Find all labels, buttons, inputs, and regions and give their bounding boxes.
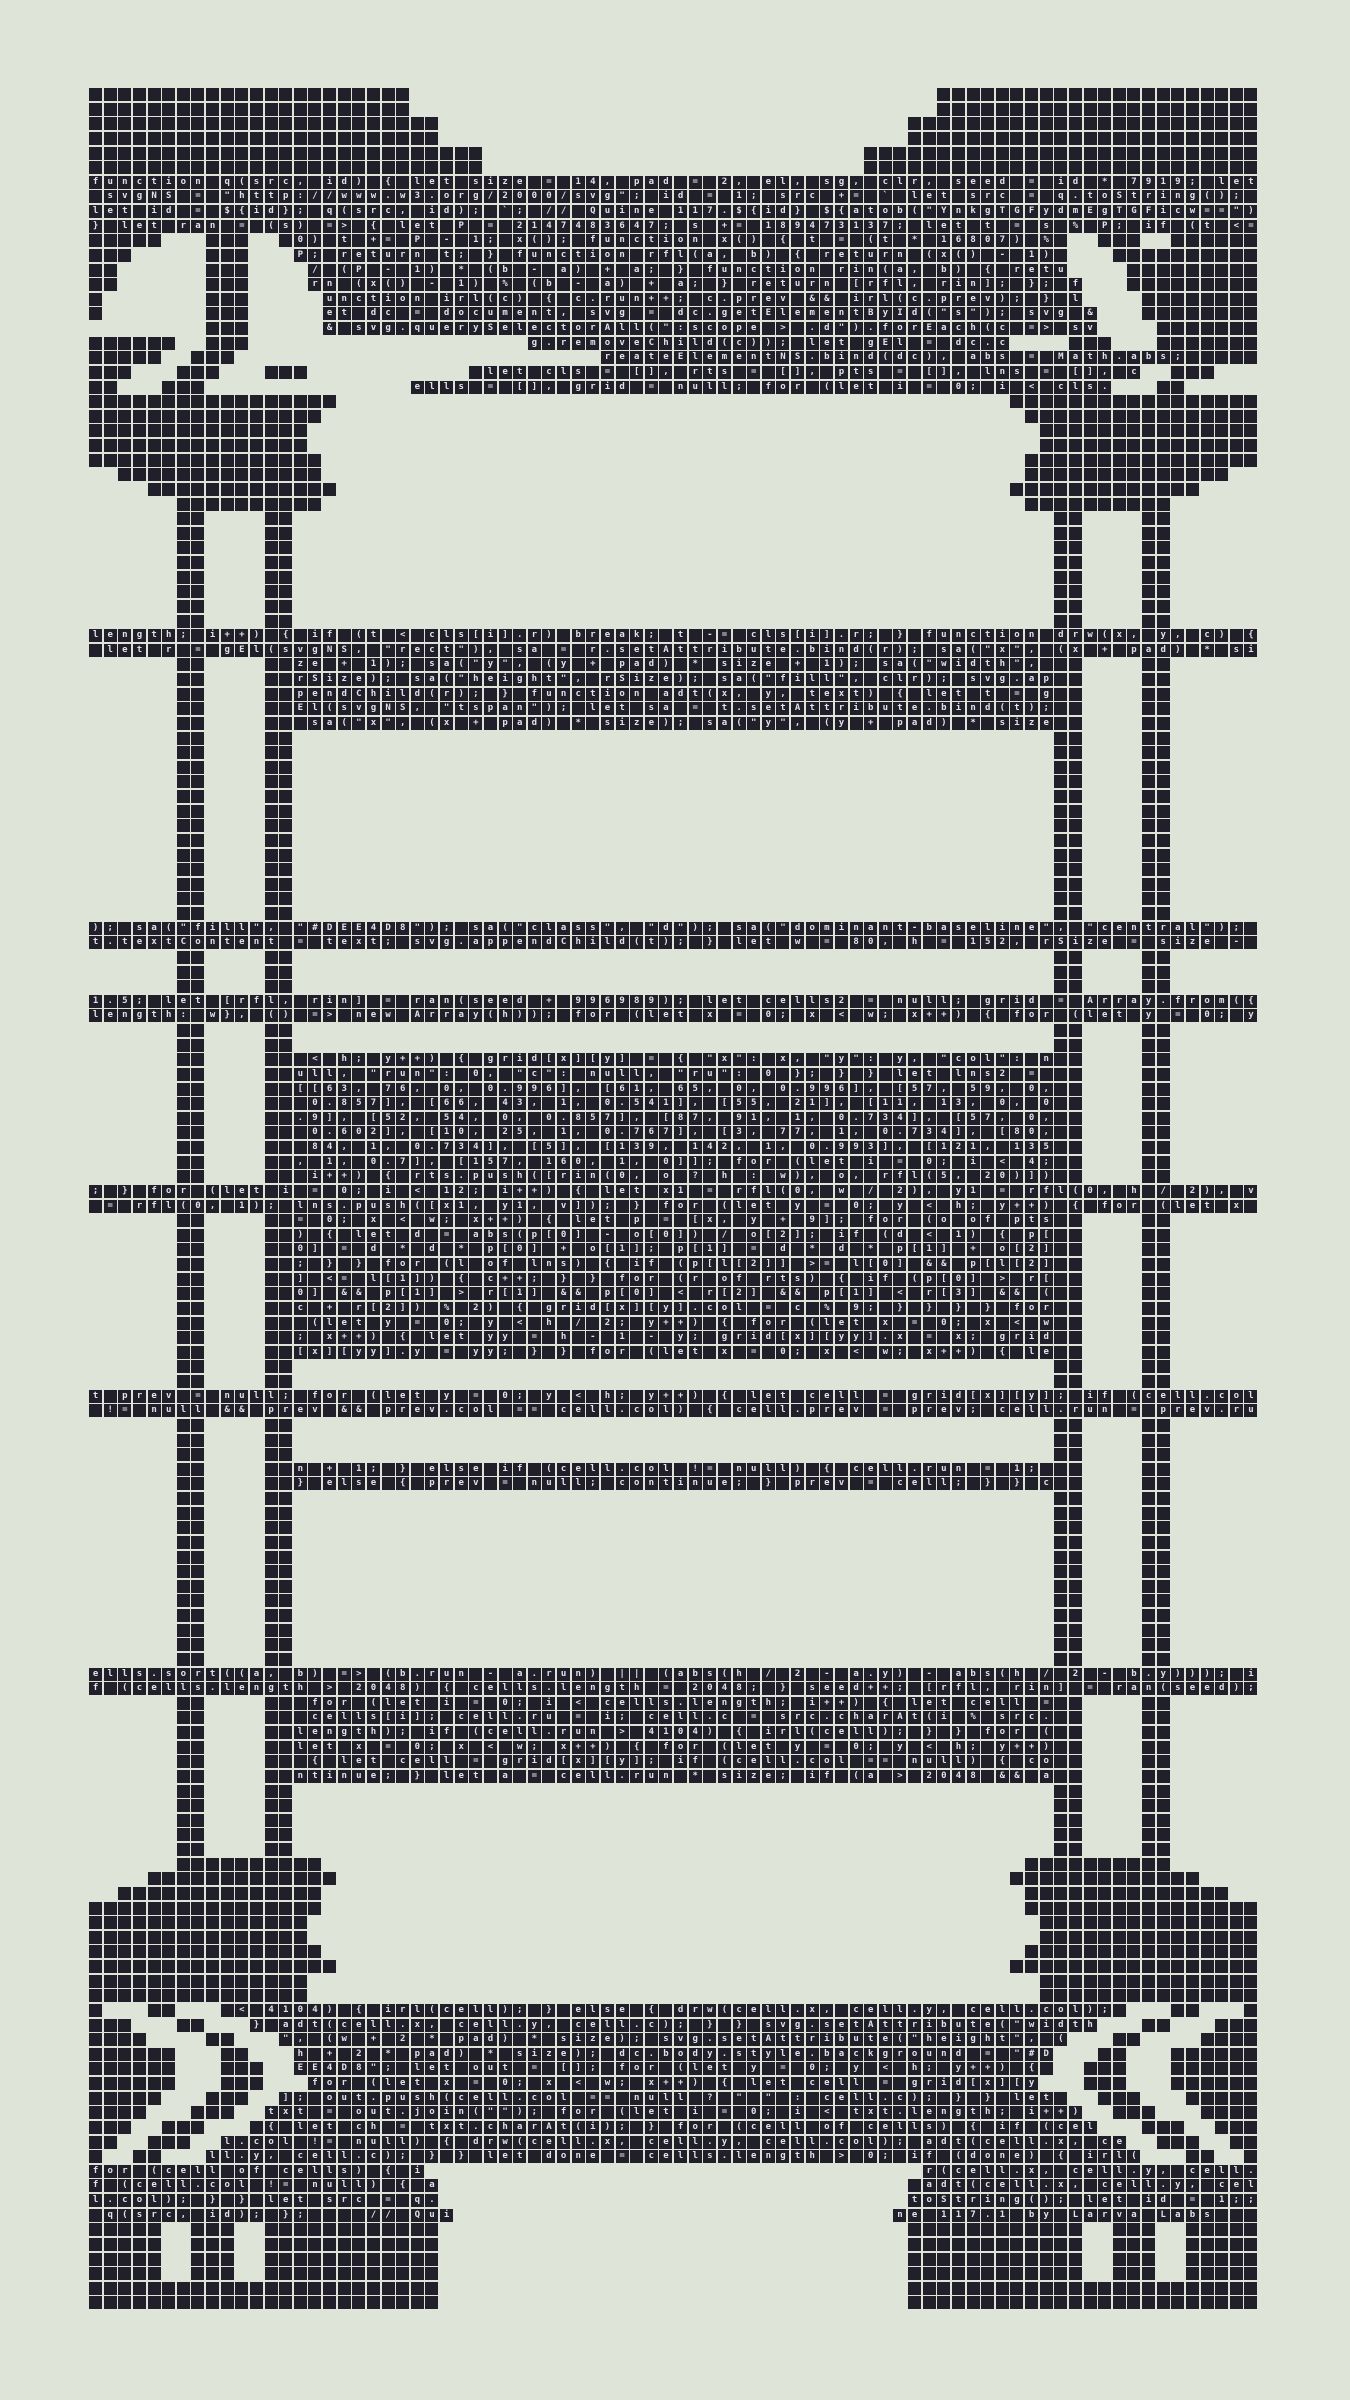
pattern-tile [411,132,424,145]
pattern-tile [265,1243,278,1256]
pattern-tile [703,220,716,233]
code-glyph-tile: f [528,688,541,701]
code-glyph-tile: . [908,1463,921,1476]
pattern-tile [1142,1799,1155,1812]
code-glyph-tile: o [791,264,804,277]
pattern-tile [1069,439,1082,452]
pattern-tile [118,1945,131,1958]
pattern-tile [791,293,804,306]
pattern-tile [572,307,585,320]
code-glyph-tile: ] [572,1229,585,1242]
pattern-tile [1054,1638,1067,1651]
code-glyph-tile: d [923,717,936,730]
code-glyph-tile: a [850,1668,863,1681]
pattern-tile [1142,483,1155,496]
code-glyph-tile: ] [411,1273,424,1286]
pattern-tile [133,1916,146,1929]
pattern-tile [1142,629,1155,642]
pattern-tile [104,1960,117,1973]
pattern-tile [1157,1097,1170,1110]
code-glyph-tile: ; [776,1770,789,1783]
code-glyph-tile: , [718,1214,731,1227]
code-glyph-tile: > [996,1273,1009,1286]
pattern-tile [630,1711,643,1724]
code-glyph-tile: z [338,673,351,686]
pattern-tile [923,161,936,174]
code-glyph-tile: e [148,1682,161,1695]
code-glyph-tile: ; [352,1053,365,1066]
code-glyph-tile: d [440,307,453,320]
pattern-tile [776,1477,789,1490]
code-glyph-tile: e [923,1697,936,1710]
code-glyph-tile: e [762,1390,775,1403]
pattern-tile [1069,849,1082,862]
code-glyph-tile: { [308,1755,321,1768]
pattern-tile [279,1039,292,1052]
pattern-tile [791,322,804,335]
pattern-tile [1201,439,1214,452]
pattern-tile [191,878,204,891]
code-glyph-tile: p [1025,1229,1038,1242]
code-glyph-tile: " [1201,922,1214,935]
pattern-tile [1054,1317,1067,1330]
pattern-tile [659,1053,672,1066]
code-glyph-tile: g [996,1331,1009,1344]
code-glyph-tile: ) [996,293,1009,306]
pattern-tile [1230,88,1243,101]
code-glyph-tile: , [733,176,746,189]
pattern-tile [981,161,994,174]
pattern-tile [1054,1945,1067,1958]
code-glyph-tile: } [1025,278,1038,291]
pattern-tile [1142,1872,1155,1885]
pattern-tile [1113,395,1126,408]
code-glyph-tile: 5 [689,1083,702,1096]
pattern-tile [864,1697,877,1710]
code-glyph-tile: l [352,1711,365,1724]
code-glyph-tile: ) [542,717,555,730]
code-glyph-tile: ] [674,1302,687,1315]
pattern-tile [265,527,278,540]
pattern-tile [1025,1770,1038,1783]
pattern-tile [528,1302,541,1315]
pattern-tile [601,1668,614,1681]
code-glyph-tile: " [850,1053,863,1066]
pattern-tile [265,1331,278,1344]
code-glyph-tile: S [484,322,497,335]
code-glyph-tile: 1 [440,1126,453,1139]
pattern-tile [908,117,921,130]
code-glyph-tile: x [616,1302,629,1315]
pattern-tile [850,1755,863,1768]
code-glyph-tile: 0 [572,1156,585,1169]
pattern-tile [177,1434,190,1447]
code-glyph-tile: ; [967,381,980,394]
pattern-tile [528,1317,541,1330]
pattern-tile [191,1331,204,1344]
pattern-tile [323,1872,336,1885]
code-glyph-tile: t [616,702,629,715]
code-glyph-tile: d [586,1302,599,1315]
pattern-tile [1025,220,1038,233]
code-glyph-tile: S [308,673,321,686]
pattern-tile [572,1346,585,1359]
pattern-tile [235,1872,248,1885]
code-glyph-tile: d [528,1053,541,1066]
code-glyph-tile: l [762,1404,775,1417]
code-glyph-tile: e [308,1741,321,1754]
code-glyph-tile: " [923,205,936,218]
code-glyph-tile: l [762,1185,775,1198]
code-glyph-tile: y [499,1200,512,1213]
pattern-tile [265,498,278,511]
code-glyph-tile: r [864,278,877,291]
pattern-tile [191,1799,204,1812]
code-glyph-tile: : [440,1068,453,1081]
code-glyph-tile: l [221,922,234,935]
code-glyph-tile: = [382,1741,395,1754]
code-glyph-tile: r [601,293,614,306]
code-glyph-tile: 2 [893,1185,906,1198]
pattern-tile [162,147,175,160]
pattern-tile [265,1053,278,1066]
code-glyph-tile: l [659,1463,672,1476]
pattern-tile [279,1799,292,1812]
code-glyph-tile: v [586,190,599,203]
code-glyph-tile: : [733,1068,746,1081]
code-glyph-tile: i [996,922,1009,935]
pattern-tile [89,190,102,203]
code-glyph-tile: = [1127,936,1140,949]
pattern-tile [1084,1872,1097,1885]
code-glyph-tile: 2 [499,190,512,203]
pattern-tile [177,1229,190,1242]
pattern-tile [1054,1346,1067,1359]
pattern-tile [1142,1814,1155,1827]
code-glyph-tile: l [776,1404,789,1417]
code-glyph-tile: i [850,293,863,306]
code-glyph-tile: l [923,688,936,701]
code-glyph-tile: c [645,1711,658,1724]
code-glyph-tile: 2 [835,995,848,1008]
code-glyph-tile: i [733,658,746,671]
pattern-tile [1142,249,1155,262]
pattern-tile [1157,395,1170,408]
code-glyph-tile: , [630,1112,643,1125]
pattern-tile [177,1565,190,1578]
code-glyph-tile: u [1054,264,1067,277]
pattern-tile [1069,775,1082,788]
pattern-tile [1098,161,1111,174]
code-glyph-tile: 7 [440,1141,453,1154]
code-glyph-tile: , [776,688,789,701]
code-glyph-tile: ; [616,1711,629,1724]
code-glyph-tile: ] [864,1331,877,1344]
pattern-tile [1127,1931,1140,1944]
pattern-tile [513,1477,526,1490]
code-glyph-tile: 6 [440,1097,453,1110]
pattern-tile [469,1331,482,1344]
pattern-tile [294,424,307,437]
pattern-tile [806,1668,819,1681]
code-glyph-tile: ) [893,644,906,657]
pattern-tile [893,190,906,203]
code-glyph-tile: r [996,995,1009,1008]
pattern-tile [265,1931,278,1944]
pattern-tile [250,1404,263,1417]
code-glyph-tile: n [806,264,819,277]
code-glyph-tile: y [557,658,570,671]
code-glyph-tile: t [981,688,994,701]
pattern-tile [279,468,292,481]
code-glyph-tile: , [235,1009,248,1022]
pattern-tile [879,1185,892,1198]
code-glyph-tile: = [1025,176,1038,189]
pattern-tile [279,1024,292,1037]
code-glyph-tile: y [1025,1390,1038,1403]
pattern-tile [542,1770,555,1783]
code-glyph-tile: . [294,1112,307,1125]
code-glyph-tile: 6 [835,1083,848,1096]
pattern-tile [1054,1536,1067,1549]
code-glyph-tile: / [323,190,336,203]
pattern-tile [864,1346,877,1359]
code-glyph-tile: a [469,1229,482,1242]
code-glyph-tile: , [703,1112,716,1125]
pattern-tile [162,1872,175,1885]
code-glyph-tile: ] [820,1214,833,1227]
code-glyph-tile: h [601,1390,614,1403]
pattern-tile [191,849,204,862]
code-glyph-tile: ) [396,278,409,291]
code-glyph-tile: a [499,702,512,715]
code-glyph-tile: / [1157,1185,1170,1198]
code-glyph-tile: ; [1040,1156,1053,1169]
pattern-tile [250,1902,263,1915]
pattern-tile [235,1887,248,1900]
code-glyph-tile: l [396,688,409,701]
code-glyph-tile: t [1113,1009,1126,1022]
code-glyph-tile: v [557,1200,570,1213]
pattern-tile [265,1945,278,1958]
pattern-tile [1142,498,1155,511]
pattern-tile [747,1668,760,1681]
code-glyph-tile: p [294,688,307,701]
pattern-tile [411,1243,424,1256]
pattern-tile [1244,922,1257,935]
pattern-tile [1142,117,1155,130]
code-glyph-tile: c [572,688,585,701]
pattern-tile [250,161,263,174]
pattern-tile [191,1126,204,1139]
code-glyph-tile: ( [689,249,702,262]
pattern-tile [221,249,234,262]
code-glyph-tile: x [323,1331,336,1344]
pattern-tile [1084,88,1097,101]
code-glyph-tile: p [499,717,512,730]
pattern-tile [733,1214,746,1227]
code-glyph-tile: , [630,1156,643,1169]
pattern-tile [308,1331,321,1344]
code-glyph-tile: * [967,717,980,730]
code-glyph-tile: t [557,322,570,335]
pattern-tile [265,1024,278,1037]
code-glyph-tile: , [908,278,921,291]
code-glyph-tile: t [440,644,453,657]
code-glyph-tile: a [630,658,643,671]
pattern-tile [1157,1287,1170,1300]
code-glyph-tile: n [338,995,351,1008]
code-glyph-tile: ( [221,1668,234,1681]
code-glyph-tile: c [1142,1390,1155,1403]
code-glyph-tile: e [1025,264,1038,277]
code-glyph-tile: e [835,1682,848,1695]
pattern-tile [191,1243,204,1256]
pattern-tile [1142,1273,1155,1286]
pattern-tile [191,1785,204,1798]
pattern-tile [1054,951,1067,964]
pattern-tile [1230,1916,1243,1929]
pattern-tile [747,220,760,233]
pattern-tile [279,1141,292,1154]
code-glyph-tile: 6 [674,1083,687,1096]
pattern-tile [411,1126,424,1139]
pattern-tile [981,1404,994,1417]
code-glyph-tile: . [791,644,804,657]
code-glyph-tile: r [1010,264,1023,277]
pattern-tile [221,132,234,145]
pattern-tile [1186,234,1199,247]
code-glyph-tile: ) [689,1317,702,1330]
code-glyph-tile: = [338,1668,351,1681]
code-glyph-tile: c [279,176,292,189]
pattern-tile [235,395,248,408]
code-glyph-tile: p [1040,673,1053,686]
code-glyph-tile: s [513,644,526,657]
pattern-tile [1113,117,1126,130]
code-glyph-tile: c [352,293,365,306]
code-glyph-tile: x [469,1214,482,1227]
pattern-tile [1157,746,1170,759]
code-glyph-tile: 9 [820,1083,833,1096]
pattern-tile [206,454,219,467]
code-glyph-tile: [ [1069,366,1082,379]
code-glyph-tile: s [572,922,585,935]
code-glyph-tile: % [820,1302,833,1315]
code-glyph-tile: 1 [835,1126,848,1139]
code-glyph-tile: r [440,1477,453,1490]
pattern-tile [1025,103,1038,116]
code-glyph-tile: ) [967,249,980,262]
code-glyph-tile: f [308,1390,321,1403]
code-glyph-tile: h [572,936,585,949]
pattern-tile [177,1609,190,1622]
code-glyph-tile: u [1084,1404,1097,1417]
pattern-tile [367,1317,380,1330]
pattern-tile [177,439,190,452]
code-glyph-tile: e [308,688,321,701]
code-glyph-tile: ] [323,1346,336,1359]
code-glyph-tile: d [645,658,658,671]
code-glyph-tile: d [864,351,877,364]
code-glyph-tile: r [1171,1404,1184,1417]
pattern-tile [294,1872,307,1885]
code-glyph-tile: ( [265,220,278,233]
code-glyph-tile: ; [689,1331,702,1344]
code-glyph-tile: . [703,1711,716,1724]
code-glyph-tile: t [191,995,204,1008]
code-glyph-tile: , [689,1126,702,1139]
code-glyph-tile: s [338,702,351,715]
code-glyph-tile: f [1010,1302,1023,1315]
code-glyph-tile: 0 [294,234,307,247]
pattern-tile [89,1945,102,1958]
code-glyph-tile: i [382,688,395,701]
code-glyph-tile: p [733,322,746,335]
pattern-tile [1084,454,1097,467]
code-glyph-tile: S [616,673,629,686]
code-glyph-tile: l [835,1755,848,1768]
code-glyph-tile: d [440,205,453,218]
pattern-tile [1201,176,1214,189]
pattern-tile [265,892,278,905]
code-glyph-tile: s [937,644,950,657]
pattern-tile [718,1463,731,1476]
code-glyph-tile: " [382,644,395,657]
code-glyph-tile: , [762,1097,775,1110]
pattern-tile [981,147,994,160]
pattern-tile [1142,936,1155,949]
code-glyph-tile: l [177,1682,190,1695]
code-glyph-tile: y [674,1331,687,1344]
pattern-tile [1142,980,1155,993]
pattern-tile [1142,1053,1155,1066]
code-glyph-tile: = [850,190,863,203]
code-glyph-tile: e [762,658,775,671]
code-glyph-tile: 1 [323,1156,336,1169]
pattern-tile [528,1214,541,1227]
code-glyph-tile: 5 [484,1156,497,1169]
pattern-tile [908,688,921,701]
code-glyph-tile: 6 [396,1083,409,1096]
code-glyph-tile: t [850,366,863,379]
code-glyph-tile: t [265,936,278,949]
pattern-tile [893,1317,906,1330]
code-glyph-tile: ) [908,1185,921,1198]
pattern-tile [235,103,248,116]
code-glyph-tile: s [586,307,599,320]
code-glyph-tile: ; [557,234,570,247]
code-glyph-tile: ) [1215,629,1228,642]
pattern-tile [1054,322,1067,335]
code-glyph-tile: e [572,1770,585,1783]
code-glyph-tile: v [352,702,365,715]
pattern-tile [776,1668,789,1681]
code-glyph-tile: ] [1040,1258,1053,1271]
code-glyph-tile: ) [747,234,760,247]
pattern-tile [1186,1009,1199,1022]
code-glyph-tile: t [338,307,351,320]
pattern-tile [1142,1594,1155,1607]
pattern-tile [294,1916,307,1929]
pattern-tile [279,1492,292,1505]
pattern-tile [279,1083,292,1096]
code-glyph-tile: ) [689,922,702,935]
pattern-tile [1157,498,1170,511]
code-glyph-tile: s [879,658,892,671]
code-glyph-tile: l [996,1258,1009,1271]
pattern-tile [191,1302,204,1315]
